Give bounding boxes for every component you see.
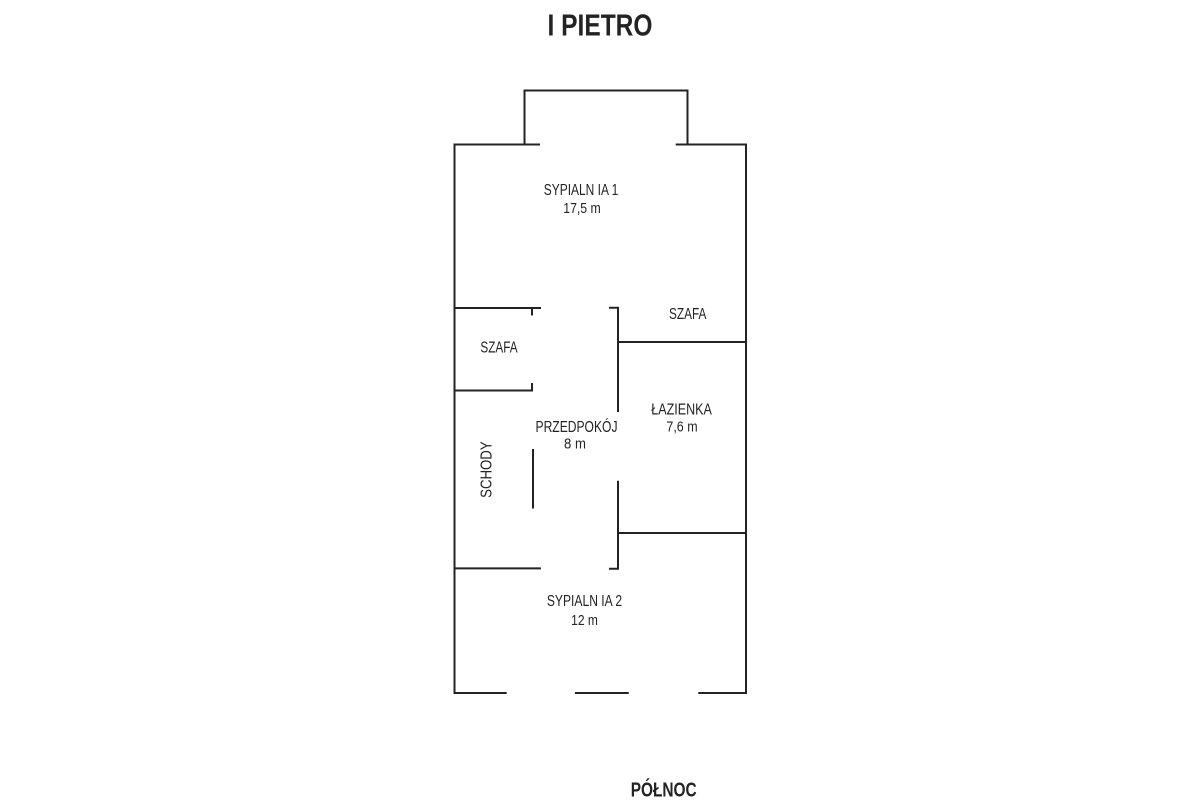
- svg-text:SYPIALN IA 1: SYPIALN IA 1: [544, 182, 619, 199]
- svg-text:SYPIALN IA 2: SYPIALN IA 2: [547, 593, 622, 610]
- svg-text:SZAFA: SZAFA: [480, 339, 518, 356]
- svg-text:I PIETRO: I PIETRO: [548, 9, 653, 43]
- svg-text:SZAFA: SZAFA: [669, 306, 707, 323]
- svg-text:12 m: 12 m: [571, 613, 598, 629]
- svg-text:PRZEDPOKÓJ: PRZEDPOKÓJ: [536, 419, 618, 436]
- svg-text:SCHODY: SCHODY: [478, 441, 495, 498]
- svg-text:17,5 m: 17,5 m: [563, 201, 601, 217]
- svg-text:ŁAZIENKA: ŁAZIENKA: [651, 401, 712, 418]
- svg-text:7,6 m: 7,6 m: [666, 420, 697, 436]
- svg-text:8 m: 8 m: [564, 436, 586, 452]
- svg-text:PÓŁNOC: PÓŁNOC: [631, 778, 697, 802]
